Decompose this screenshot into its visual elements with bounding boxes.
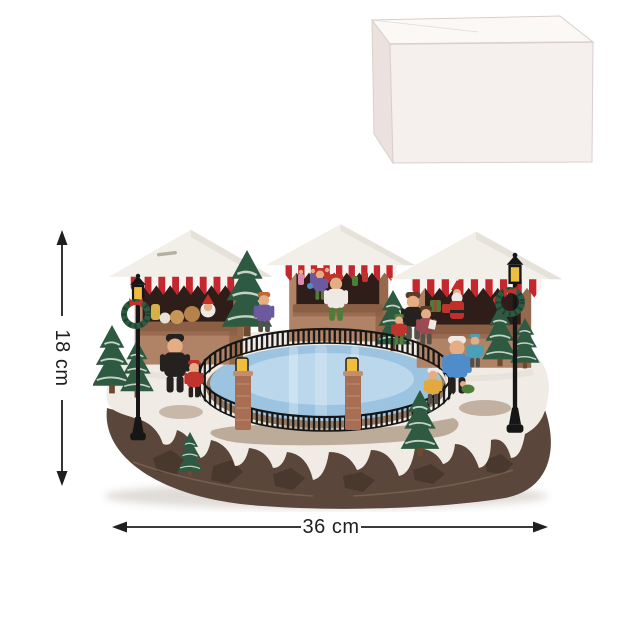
- packaging-box: [360, 12, 610, 172]
- height-dimension-arrow: 18 cm: [48, 228, 78, 488]
- blue-bag: [307, 283, 313, 289]
- box-faces: [372, 16, 593, 163]
- product-photo: 18 cm 36 cm: [0, 0, 625, 625]
- width-dimension-arrow: 36 cm: [105, 512, 555, 542]
- height-dimension-label: 18 cm: [51, 330, 73, 387]
- width-dimension-label: 36 cm: [303, 516, 360, 538]
- village-figurine: [93, 222, 563, 512]
